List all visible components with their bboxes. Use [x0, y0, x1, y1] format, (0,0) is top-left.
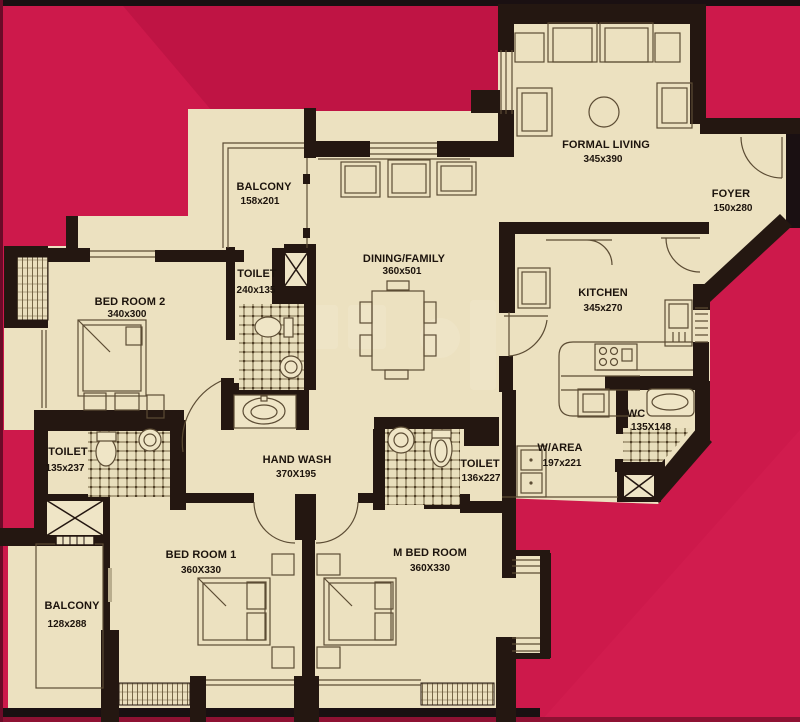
svg-text:345x390: 345x390: [584, 154, 623, 165]
svg-text:TOILET: TOILET: [237, 268, 277, 280]
svg-text:340x300: 340x300: [108, 309, 147, 320]
svg-text:136x227: 136x227: [462, 473, 501, 484]
svg-text:BED ROOM 1: BED ROOM 1: [166, 549, 237, 561]
svg-text:DINING/FAMILY: DINING/FAMILY: [363, 253, 446, 265]
svg-text:KITCHEN: KITCHEN: [578, 287, 628, 299]
svg-text:W/AREA: W/AREA: [537, 442, 582, 454]
svg-text:370X195: 370X195: [276, 469, 316, 480]
svg-text:197x221: 197x221: [543, 458, 582, 469]
svg-text:360X330: 360X330: [181, 565, 221, 576]
svg-text:HAND WASH: HAND WASH: [263, 454, 332, 466]
svg-text:345x270: 345x270: [584, 303, 623, 314]
svg-text:128x288: 128x288: [48, 619, 87, 630]
svg-text:TOILET: TOILET: [48, 446, 88, 458]
svg-text:BED ROOM 2: BED ROOM 2: [95, 296, 166, 308]
svg-text:135X148: 135X148: [631, 422, 671, 433]
svg-text:FORMAL LIVING: FORMAL LIVING: [562, 139, 650, 151]
svg-text:240x135: 240x135: [237, 285, 276, 296]
svg-text:360X330: 360X330: [410, 563, 450, 574]
svg-text:158x201: 158x201: [241, 196, 280, 207]
svg-text:360x501: 360x501: [383, 266, 422, 277]
svg-text:135x237: 135x237: [46, 463, 85, 474]
svg-text:TOILET: TOILET: [460, 458, 500, 470]
svg-text:M BED ROOM: M BED ROOM: [393, 547, 467, 559]
svg-text:BALCONY: BALCONY: [236, 181, 292, 193]
svg-text:BALCONY: BALCONY: [44, 600, 100, 612]
svg-text:FOYER: FOYER: [712, 188, 750, 200]
svg-text:WC: WC: [627, 408, 646, 420]
svg-text:150x280: 150x280: [714, 203, 753, 214]
